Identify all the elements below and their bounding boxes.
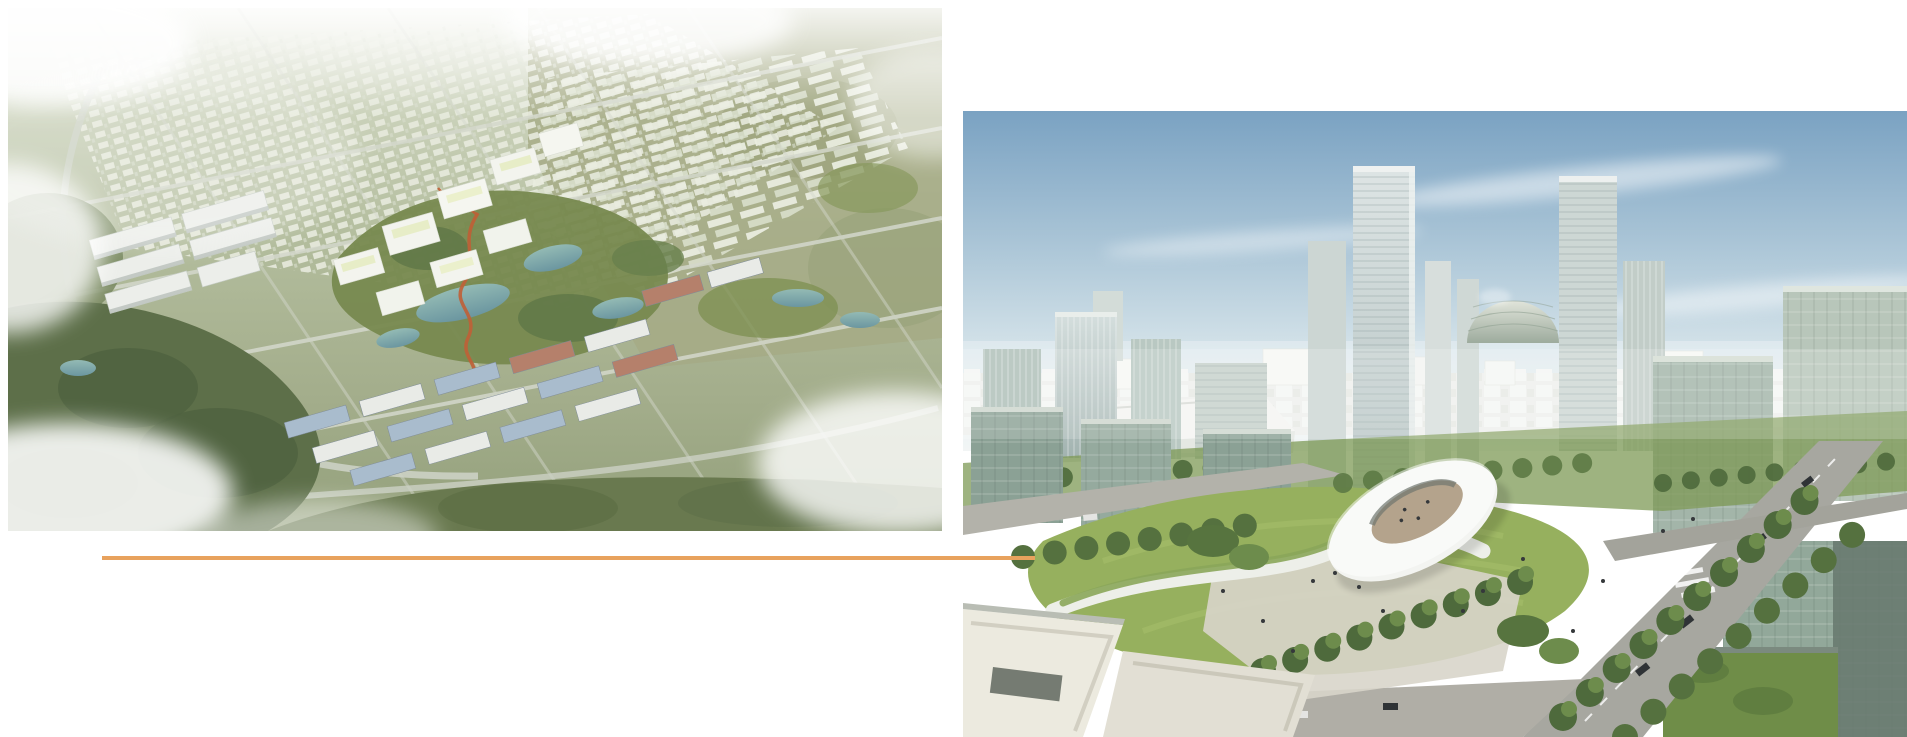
- city-plaza-image: [963, 111, 1907, 737]
- slide-canvas: [0, 0, 1907, 737]
- lawn-plaza: [1028, 487, 1589, 701]
- horizon-haze: [963, 349, 1907, 439]
- aerial-masterplan-svg: [8, 8, 942, 531]
- city-plaza-svg: [963, 111, 1907, 737]
- aerial-masterplan-image: [8, 8, 942, 531]
- divider-line: [102, 556, 1035, 560]
